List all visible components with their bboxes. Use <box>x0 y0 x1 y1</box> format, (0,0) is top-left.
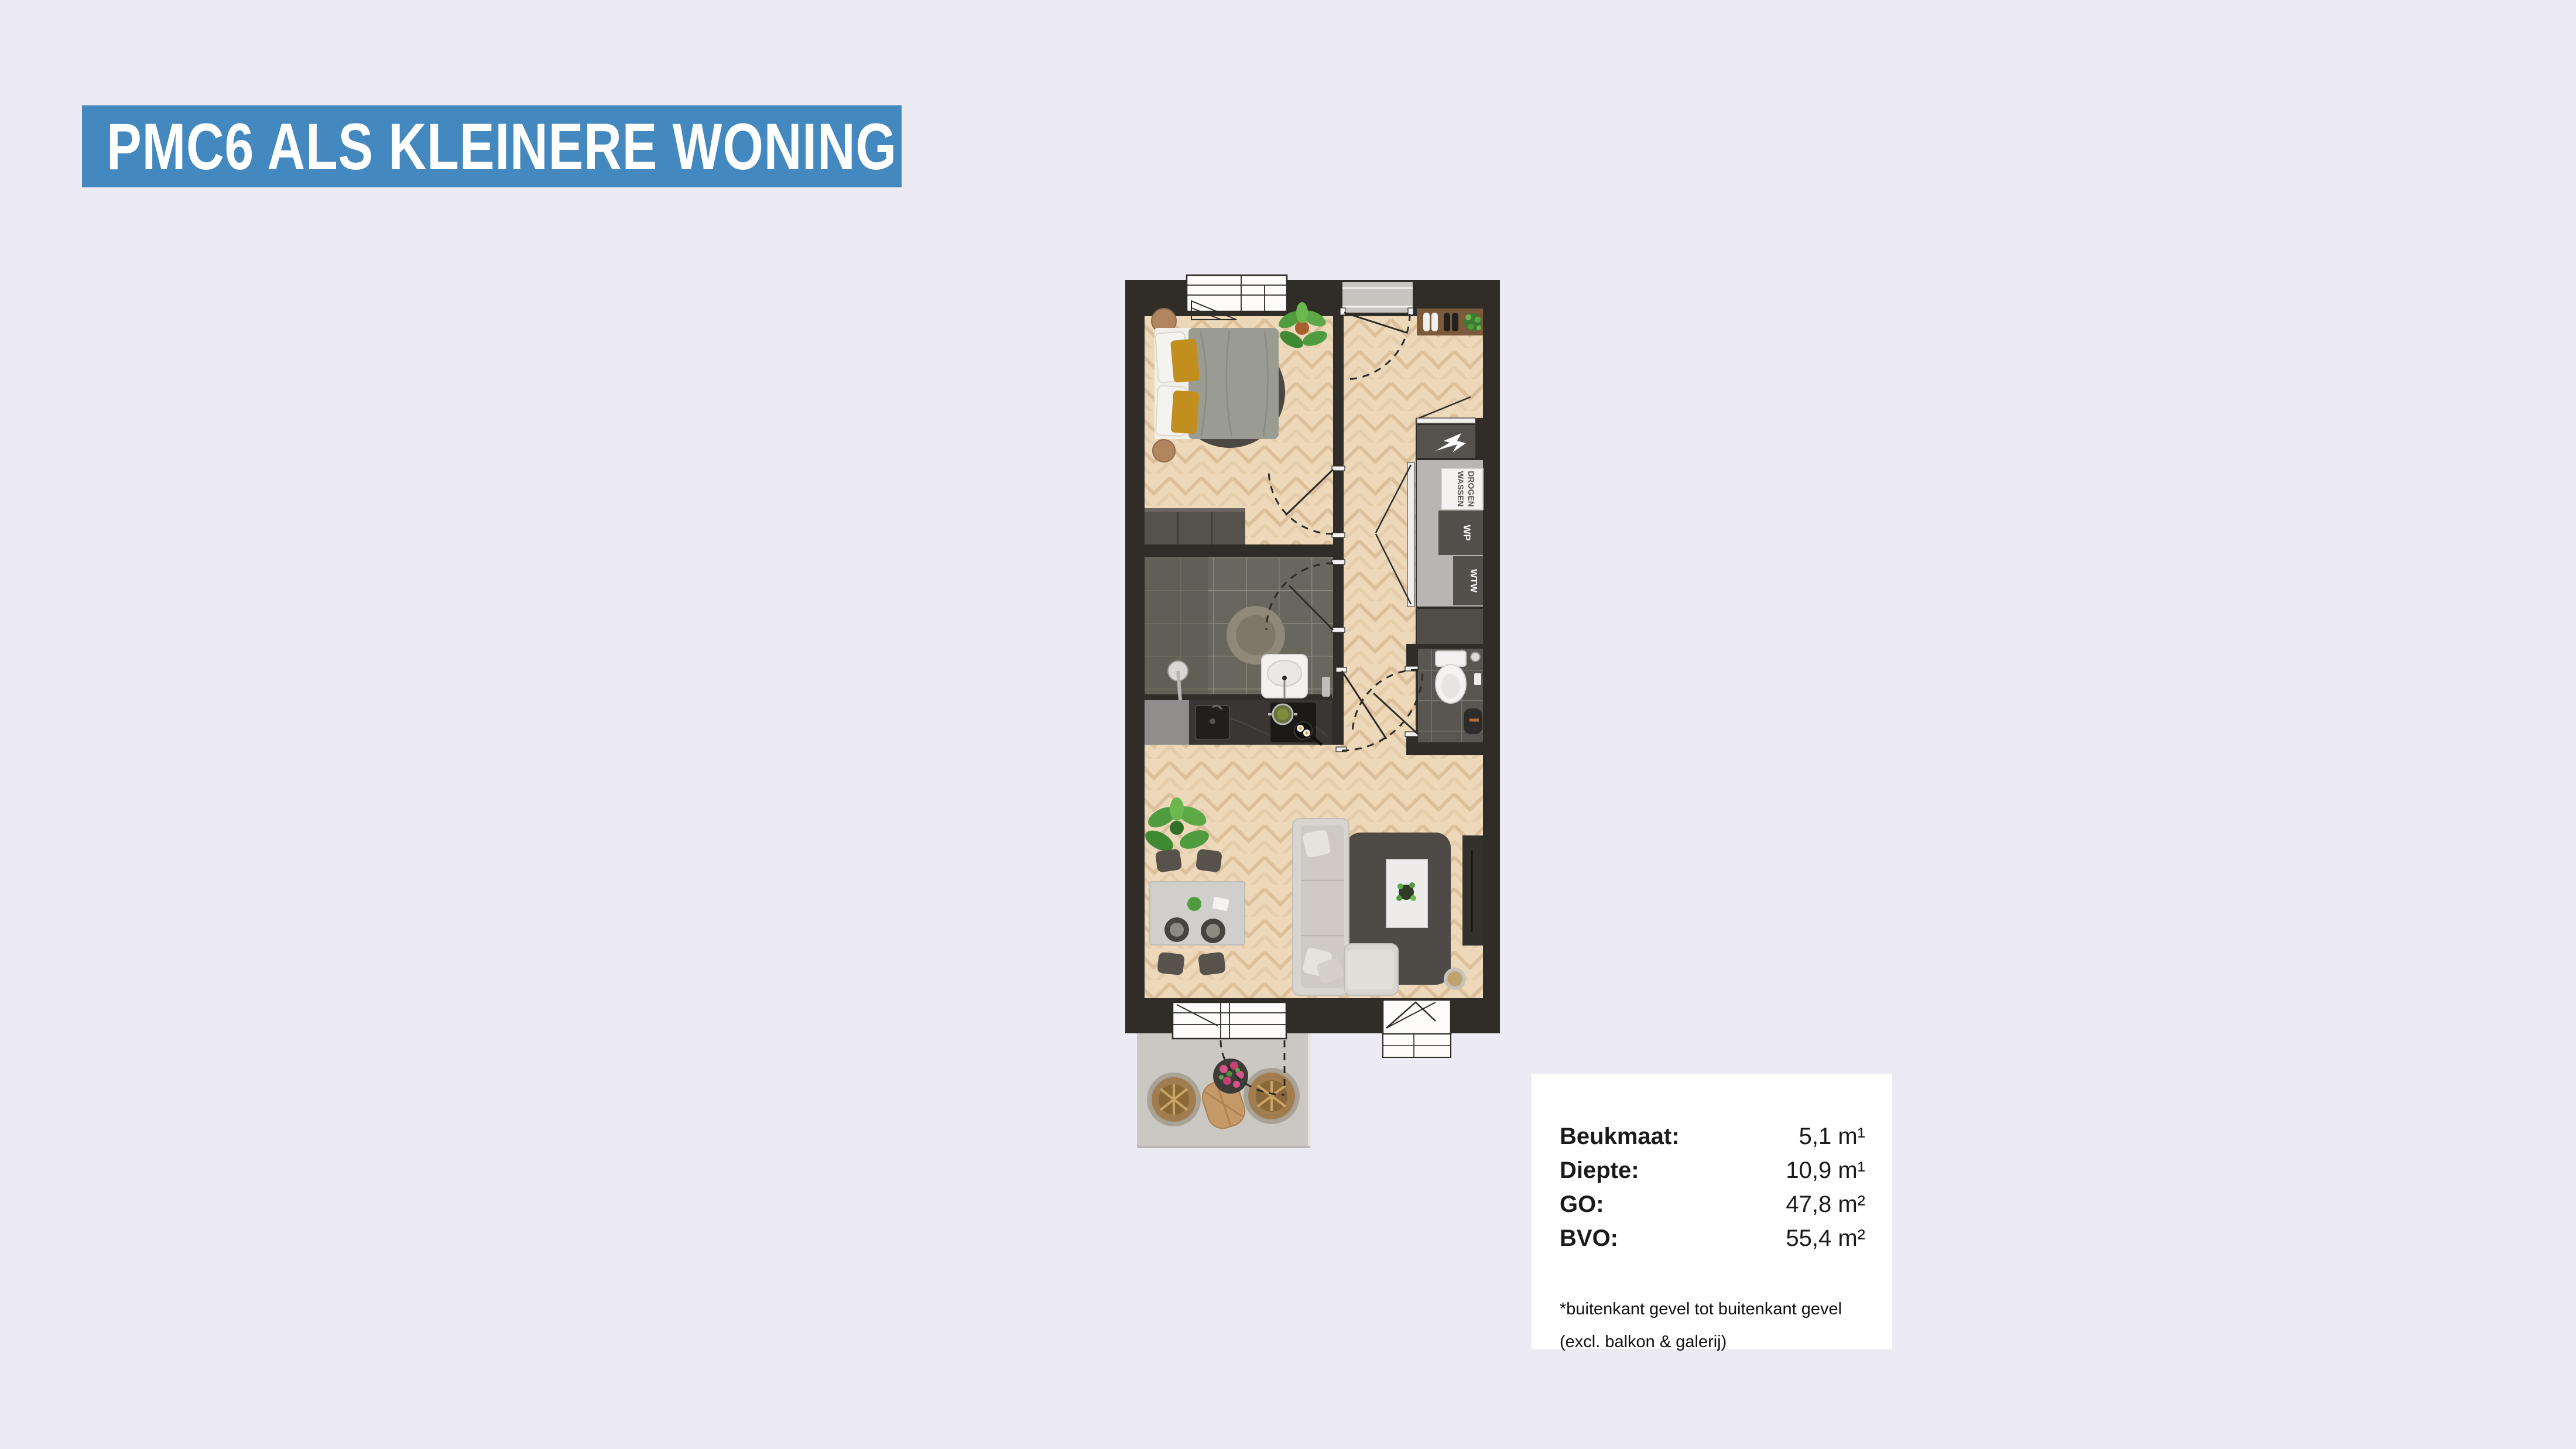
hand-basin <box>1464 708 1482 734</box>
balcony <box>1137 1033 1311 1148</box>
wardrobe <box>1145 508 1245 544</box>
spec-label: Diepte: <box>1560 1157 1639 1184</box>
dining-chair <box>1157 952 1185 975</box>
floorplan: WASSEN DROGEN WP WTW <box>1112 263 1522 1177</box>
cooktop <box>1268 703 1322 745</box>
hall-floor <box>1344 410 1416 745</box>
footnote-line-2: (excl. balkon & galerij) <box>1560 1325 1865 1358</box>
heat-pump <box>1438 511 1483 555</box>
page-title: PMC6 ALS KLEINERE WONING <box>107 109 897 184</box>
toilet <box>1436 651 1466 703</box>
duct-shaft <box>1417 609 1483 646</box>
spec-label: GO: <box>1560 1191 1604 1218</box>
accent-pillow <box>1171 390 1200 434</box>
spec-label: BVO: <box>1560 1225 1618 1252</box>
footnote: *buitenkant gevel tot buitenkant gevel (… <box>1560 1293 1865 1358</box>
spotlight <box>1471 652 1480 662</box>
spec-value: 10,9 m¹ <box>1786 1157 1865 1184</box>
title-banner: PMC6 ALS KLEINERE WONING <box>82 105 902 187</box>
dining-chair <box>1198 951 1226 975</box>
balcony-chair <box>1147 1073 1201 1126</box>
media-console <box>1462 835 1483 946</box>
spec-row-beukmaat: Beukmaat: 5,1 m¹ <box>1560 1119 1865 1153</box>
towel <box>1322 677 1330 697</box>
fridge <box>1145 700 1189 745</box>
balcony-chair <box>1244 1068 1300 1124</box>
coffee-table <box>1386 859 1427 927</box>
side-table <box>1153 440 1175 462</box>
frying-pan <box>1294 722 1312 739</box>
balcony-planter <box>1213 1059 1248 1094</box>
balcony-door-window <box>1173 1002 1286 1039</box>
kitchen <box>1145 700 1332 745</box>
closet-doors <box>1407 463 1414 607</box>
sofa-pillow <box>1302 829 1331 858</box>
bathroom-sink <box>1262 655 1307 698</box>
dryer-label: DROGEN <box>1467 471 1476 506</box>
spec-row-go: GO: 47,8 m² <box>1560 1187 1865 1221</box>
sneaker <box>1423 313 1430 331</box>
kitchen-sink <box>1195 705 1229 739</box>
dimensions-info-box: Beukmaat: 5,1 m¹ Diepte: 10,9 m¹ GO: 47,… <box>1532 1074 1892 1349</box>
spec-row-bvo: BVO: 55,4 m² <box>1560 1221 1865 1255</box>
spec-value: 55,4 m² <box>1786 1225 1865 1252</box>
spec-label: Beukmaat: <box>1560 1123 1680 1150</box>
shoe <box>1444 313 1450 331</box>
spec-row-diepte: Diepte: 10,9 m¹ <box>1560 1153 1865 1187</box>
bed <box>1155 328 1279 439</box>
accent-pillow <box>1170 338 1200 383</box>
living-window <box>1383 1000 1451 1057</box>
dining-table <box>1150 882 1245 945</box>
wp-label: WP <box>1461 525 1472 540</box>
washer-label: WASSEN <box>1456 471 1465 507</box>
footnote-line-1: *buitenkant gevel tot buitenkant gevel <box>1560 1293 1865 1325</box>
shoe <box>1452 313 1458 331</box>
wtw-label: WTW <box>1468 569 1478 593</box>
toilet-paper-holder <box>1474 673 1481 685</box>
dining-chair <box>1155 848 1183 872</box>
spec-value: 47,8 m² <box>1786 1191 1865 1218</box>
table-plant <box>1187 897 1201 911</box>
spec-value: 5,1 m¹ <box>1799 1123 1865 1150</box>
entry <box>1417 309 1483 335</box>
page: PMC6 ALS KLEINERE WONING <box>0 0 2576 1449</box>
dining-chair <box>1195 849 1222 873</box>
sneaker <box>1431 313 1438 331</box>
